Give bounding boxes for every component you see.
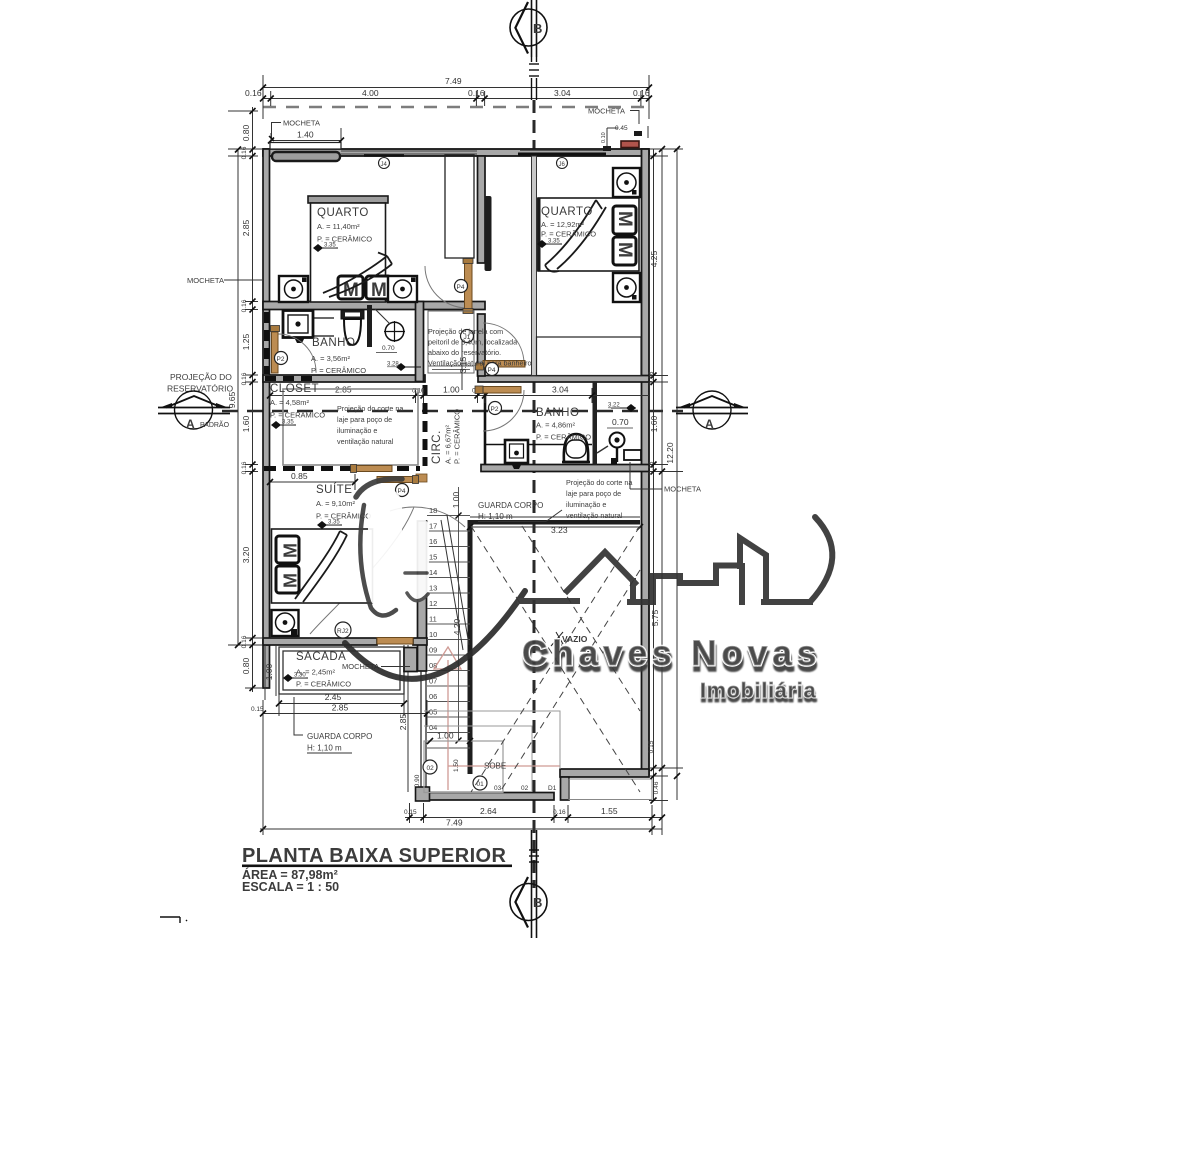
- svg-text:D1: D1: [548, 785, 557, 792]
- svg-text:3.30: 3.30: [294, 673, 306, 679]
- svg-text:MOCHETA: MOCHETA: [588, 107, 625, 116]
- svg-text:A. = 3,56m²: A. = 3,56m²: [311, 354, 350, 363]
- svg-text:Projeção do corte na: Projeção do corte na: [337, 404, 403, 413]
- svg-text:14: 14: [429, 568, 437, 577]
- svg-text:1.00: 1.00: [443, 385, 460, 395]
- svg-text:PLANTA BAIXA SUPERIOR: PLANTA BAIXA SUPERIOR: [242, 845, 506, 867]
- svg-text:5.75: 5.75: [650, 609, 660, 626]
- svg-text:1.55: 1.55: [601, 806, 618, 816]
- svg-text:CIRC.: CIRC.: [431, 430, 443, 464]
- svg-text:1.50: 1.50: [453, 759, 460, 772]
- svg-text:12: 12: [429, 599, 437, 608]
- svg-text:H: 1,10 m: H: 1,10 m: [478, 512, 513, 521]
- svg-text:Ventilação natural para banhei: Ventilação natural para banheiro: [428, 359, 532, 368]
- svg-text:P. = CERÂMICO: P. = CERÂMICO: [311, 366, 366, 375]
- svg-text:0.80: 0.80: [241, 657, 251, 674]
- svg-text:SUÍTE: SUÍTE: [316, 483, 352, 496]
- svg-text:1.00: 1.00: [437, 731, 454, 741]
- svg-text:3.28: 3.28: [387, 362, 399, 368]
- svg-text:A. = 4,86m²: A. = 4,86m²: [536, 421, 575, 430]
- svg-text:iluminação e: iluminação e: [566, 500, 606, 509]
- svg-text:3.35: 3.35: [328, 520, 340, 526]
- svg-text:M: M: [371, 280, 387, 301]
- svg-text:2.85: 2.85: [398, 713, 408, 730]
- svg-text:2.85: 2.85: [241, 219, 251, 236]
- svg-text:3.35: 3.35: [548, 239, 560, 245]
- svg-text:16: 16: [429, 537, 437, 546]
- svg-text:7.49: 7.49: [446, 818, 463, 828]
- svg-text:0.16: 0.16: [468, 88, 485, 98]
- svg-text:05: 05: [429, 708, 437, 717]
- svg-text:P. = CERÂMICO: P. = CERÂMICO: [296, 680, 351, 689]
- svg-text:1.60: 1.60: [241, 415, 251, 432]
- svg-text:MOCHETA: MOCHETA: [283, 119, 320, 128]
- svg-text:BANHO: BANHO: [312, 337, 355, 349]
- svg-text:GUARDA CORPO: GUARDA CORPO: [307, 732, 372, 741]
- svg-text:3.23: 3.23: [551, 525, 568, 535]
- svg-text:MOCHETA: MOCHETA: [664, 485, 701, 494]
- svg-text:1.00: 1.00: [451, 491, 461, 508]
- svg-text:11: 11: [429, 615, 437, 624]
- svg-text:09: 09: [429, 646, 437, 655]
- svg-text:abaixo do reservatório.: abaixo do reservatório.: [428, 348, 501, 357]
- svg-text:laje para poço de: laje para poço de: [337, 415, 392, 424]
- svg-text:0.16: 0.16: [241, 299, 248, 312]
- svg-text:0.16: 0.16: [241, 372, 248, 385]
- svg-text:B: B: [533, 895, 542, 910]
- svg-text:Projeção do corte na: Projeção do corte na: [566, 478, 632, 487]
- svg-text:QUARTO: QUARTO: [541, 206, 593, 218]
- svg-text:0.16: 0.16: [241, 146, 248, 159]
- svg-text:10: 10: [429, 630, 437, 639]
- svg-text:0.16: 0.16: [245, 88, 262, 98]
- svg-text:1.40: 1.40: [297, 130, 314, 140]
- svg-text:4.20: 4.20: [452, 618, 462, 635]
- svg-text:B: B: [533, 21, 542, 36]
- svg-text:3.20: 3.20: [241, 546, 251, 563]
- svg-text:iluminação e: iluminação e: [337, 426, 377, 435]
- svg-text:M: M: [281, 573, 301, 588]
- svg-text:P. = CERÂMICO: P. = CERÂMICO: [536, 433, 591, 442]
- svg-text:7.49: 7.49: [445, 76, 462, 86]
- svg-text:ESCALA = 1 : 50: ESCALA = 1 : 50: [242, 880, 339, 894]
- svg-text:02: 02: [521, 785, 529, 792]
- svg-text:0.15: 0.15: [251, 706, 264, 713]
- svg-text:0.16: 0.16: [553, 809, 566, 816]
- svg-text:2.85: 2.85: [332, 703, 349, 713]
- svg-text:P4: P4: [488, 367, 496, 374]
- svg-text:A. = 11,40m²: A. = 11,40m²: [317, 222, 360, 231]
- svg-text:ventilação natural: ventilação natural: [337, 437, 394, 446]
- svg-text:H: 1,10 m: H: 1,10 m: [307, 744, 342, 753]
- svg-text:peitoril de 3,40m, localizada: peitoril de 3,40m, localizada: [428, 338, 517, 347]
- svg-text:M: M: [281, 543, 301, 558]
- svg-text:J4: J4: [381, 162, 388, 168]
- svg-text:A. = 9,10m²: A. = 9,10m²: [316, 499, 355, 508]
- svg-text:3.04: 3.04: [552, 385, 569, 395]
- svg-text:A. = 6,67m²: A. = 6,67m²: [444, 425, 453, 464]
- svg-text:P2: P2: [491, 406, 499, 413]
- svg-text:MOCHETA: MOCHETA: [187, 276, 224, 285]
- svg-text:PADRÃO: PADRÃO: [200, 420, 230, 429]
- svg-text:0.15: 0.15: [648, 740, 655, 753]
- svg-text:GUARDA CORPO: GUARDA CORPO: [478, 501, 543, 510]
- svg-text:0.70: 0.70: [382, 345, 395, 352]
- svg-text:A: A: [186, 417, 195, 431]
- svg-text:06: 06: [429, 692, 437, 701]
- svg-text:Imobiliária: Imobiliária: [700, 679, 817, 703]
- svg-text:M: M: [614, 211, 635, 227]
- svg-text:02: 02: [427, 765, 435, 772]
- svg-text:0.90: 0.90: [414, 774, 421, 787]
- svg-text:0.70: 0.70: [612, 417, 629, 427]
- svg-text:laje para poço de: laje para poço de: [566, 489, 621, 498]
- svg-text:RJ2: RJ2: [337, 628, 349, 635]
- svg-text:A. = 12,92m²: A. = 12,92m²: [541, 220, 585, 229]
- svg-text:SOBE: SOBE: [484, 762, 506, 771]
- svg-text:3.35: 3.35: [324, 243, 336, 249]
- svg-text:P. = CERÂMICO: P. = CERÂMICO: [453, 409, 462, 464]
- svg-text:12.20: 12.20: [665, 442, 675, 464]
- svg-text:0.85: 0.85: [291, 471, 308, 481]
- svg-text:P. = CERÂMICO: P. = CERÂMICO: [270, 411, 325, 420]
- svg-text:P4: P4: [398, 488, 406, 495]
- svg-text:CLOSET: CLOSET: [270, 383, 319, 395]
- svg-text:QUARTO: QUARTO: [317, 207, 369, 219]
- svg-text:A: A: [705, 417, 714, 431]
- svg-text:P. = CERÂMICO: P. = CERÂMICO: [541, 230, 596, 239]
- svg-text:18: 18: [429, 506, 437, 515]
- svg-text:1.60: 1.60: [649, 415, 659, 432]
- svg-text:15: 15: [429, 553, 437, 562]
- svg-text:A. = 4,58m²: A. = 4,58m²: [270, 398, 309, 407]
- svg-text:0.15: 0.15: [404, 809, 417, 816]
- svg-text:J6: J6: [559, 162, 566, 168]
- svg-text:P4: P4: [457, 284, 465, 291]
- svg-text:0.16: 0.16: [241, 635, 248, 648]
- svg-text:0.16: 0.16: [241, 461, 248, 474]
- svg-text:0.16: 0.16: [648, 371, 655, 384]
- svg-text:ventilação natural: ventilação natural: [566, 511, 623, 520]
- svg-text:13: 13: [429, 584, 437, 593]
- svg-text:0.45: 0.45: [615, 125, 628, 132]
- svg-text:P2: P2: [277, 356, 285, 363]
- svg-text:03: 03: [494, 785, 502, 792]
- svg-text:2.64: 2.64: [480, 806, 497, 816]
- svg-text:BANHO: BANHO: [536, 407, 579, 419]
- svg-text:0.16: 0.16: [648, 461, 655, 474]
- svg-text:1.00: 1.00: [264, 663, 274, 680]
- svg-text:1.25: 1.25: [241, 333, 251, 350]
- svg-text:3.35: 3.35: [282, 420, 294, 426]
- svg-text:0.16: 0.16: [633, 88, 650, 98]
- svg-text:0.10: 0.10: [601, 132, 607, 143]
- svg-text:9.65: 9.65: [227, 391, 237, 408]
- svg-text:PROJEÇÃO DO: PROJEÇÃO DO: [170, 372, 232, 382]
- svg-text:0.80: 0.80: [241, 124, 251, 141]
- svg-text:0.46: 0.46: [653, 781, 660, 794]
- svg-text:4.00: 4.00: [362, 88, 379, 98]
- svg-text:Chaves Novas: Chaves Novas: [522, 634, 821, 673]
- svg-text:SACADA: SACADA: [296, 651, 346, 663]
- svg-text:3.22: 3.22: [608, 403, 620, 409]
- svg-text:Projeção de janela com: Projeção de janela com: [428, 327, 503, 336]
- svg-text:17: 17: [429, 522, 437, 531]
- svg-text:3.04: 3.04: [554, 88, 571, 98]
- svg-text:M: M: [614, 242, 635, 258]
- svg-text:4.25: 4.25: [649, 250, 659, 267]
